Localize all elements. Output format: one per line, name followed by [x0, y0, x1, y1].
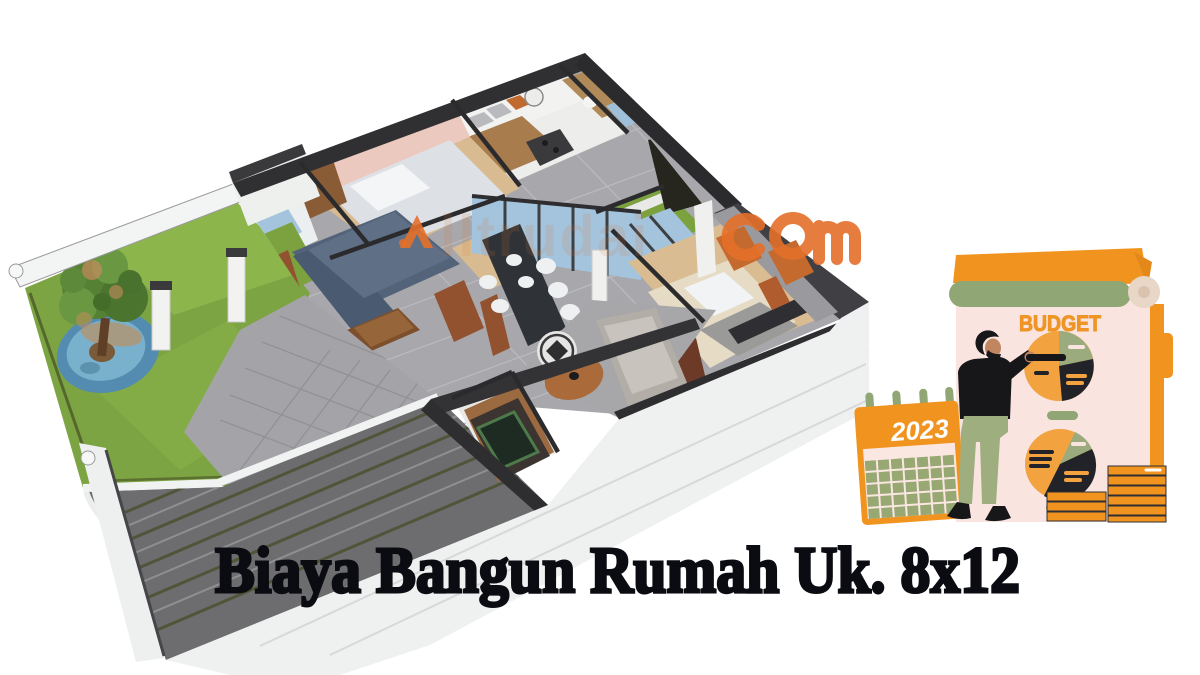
svg-text:Biaya Bangun Rumah Uk. 8x12: Biaya Bangun Rumah Uk. 8x12 [215, 534, 1020, 607]
svg-text:lltrudai: lltrudai [440, 204, 649, 269]
svg-text:2023: 2023 [889, 413, 950, 447]
